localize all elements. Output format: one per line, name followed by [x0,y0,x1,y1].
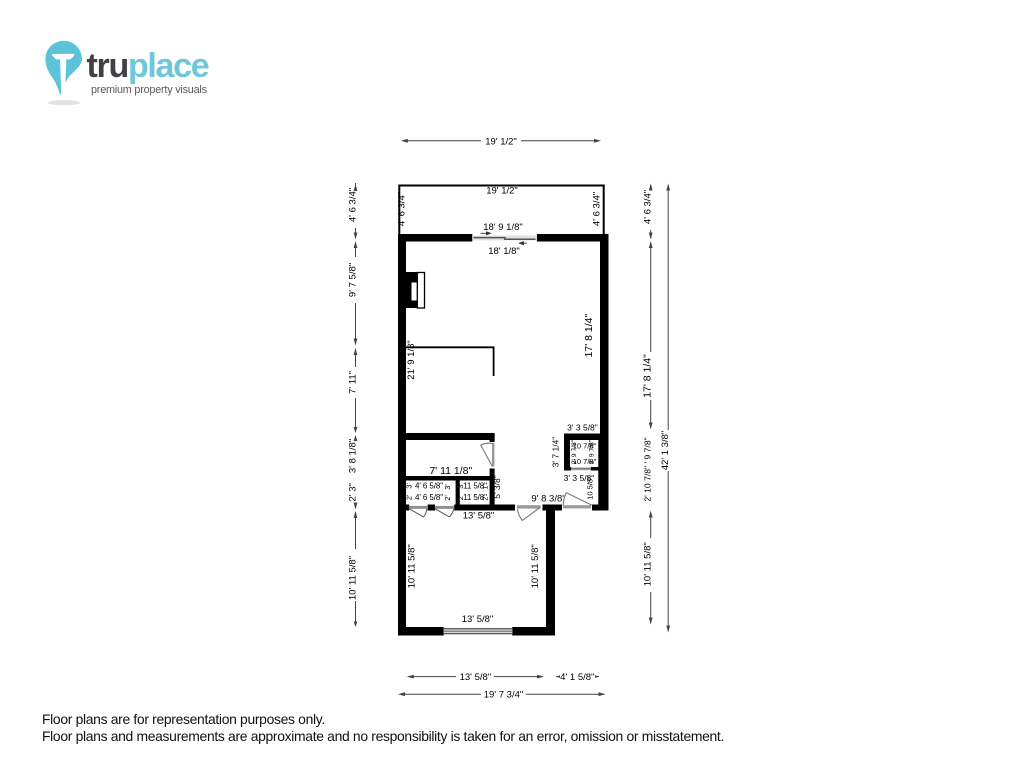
svg-text:13' 5/8": 13' 5/8" [460,672,492,683]
svg-text:4' 6 3/4": 4' 6 3/4" [643,190,654,224]
svg-text:17' 8 1/4": 17' 8 1/4" [642,354,654,398]
svg-text:18' 9 1/8": 18' 9 1/8" [483,222,523,233]
svg-text:3' 3 5/8": 3' 3 5/8" [567,423,598,433]
svg-text:10' 11 5/8": 10' 11 5/8" [530,544,541,588]
svg-text:2': 2' [456,494,465,500]
svg-text:4' 6 3/4": 4' 6 3/4" [348,188,359,222]
svg-text:19' 1/2": 19' 1/2" [485,136,517,147]
svg-text:4' 6 3/4": 4' 6 3/4" [397,192,408,226]
svg-text:9' 7 5/8": 9' 7 5/8" [348,263,359,297]
svg-text:truplace: truplace [87,47,209,85]
svg-text:4' 6 5/8": 4' 6 5/8" [415,493,443,502]
svg-text:19' 7 3/4": 19' 7 3/4" [484,690,524,701]
svg-text:4' 6 3/4": 4' 6 3/4" [592,192,603,226]
svg-text:10 5/8": 10 5/8" [586,476,595,500]
svg-text:21' 9 1/8": 21' 9 1/8" [406,340,417,380]
svg-text:3' 7 1/4": 3' 7 1/4" [551,437,561,468]
svg-text:1': 1' [481,484,490,490]
svg-text:5' 3/8": 5' 3/8" [492,475,502,499]
svg-text:10' 11 5/8": 10' 11 5/8" [407,544,418,588]
svg-text:4' 1 5/8": 4' 1 5/8" [560,672,594,683]
svg-text:4' 6 5/8": 4' 6 5/8" [415,482,443,491]
svg-text:10 7/8": 10 7/8" [573,457,597,466]
svg-text:17' 8 1/4": 17' 8 1/4" [583,313,595,357]
svg-text:premium property visuals: premium property visuals [91,84,208,96]
svg-text:2': 2' [443,495,452,501]
svg-text:10' 11 5/8": 10' 11 5/8" [348,556,359,600]
svg-text:2': 2' [405,494,414,500]
svg-text:10 7/8": 10 7/8" [573,442,597,451]
svg-text:42' 1 3/8": 42' 1 3/8" [660,431,671,471]
svg-text:3': 3' [456,483,465,489]
svg-text:9' 8 3/8": 9' 8 3/8" [531,494,565,505]
svg-text:19' 1/2": 19' 1/2" [486,186,518,197]
svg-text:13' 5/8": 13' 5/8" [462,614,494,625]
svg-text:2' 10 7/8" ' 9 7/8": 2' 10 7/8" ' 9 7/8" [643,437,653,501]
svg-text:3': 3' [443,484,452,490]
svg-text:7' 11 1/8": 7' 11 1/8" [429,465,472,477]
svg-text:7' 11": 7' 11" [348,371,359,394]
svg-text:2': 2' [481,495,490,501]
svg-text:13' 5/8": 13' 5/8" [463,511,495,522]
svg-text:2' 3": 2' 3" [348,483,359,501]
svg-text:3': 3' [405,483,414,489]
svg-text:18' 1/8": 18' 1/8" [488,246,520,257]
svg-text:10' 11 5/8": 10' 11 5/8" [643,542,654,586]
svg-text:3' 8 1/8": 3' 8 1/8" [348,439,359,473]
